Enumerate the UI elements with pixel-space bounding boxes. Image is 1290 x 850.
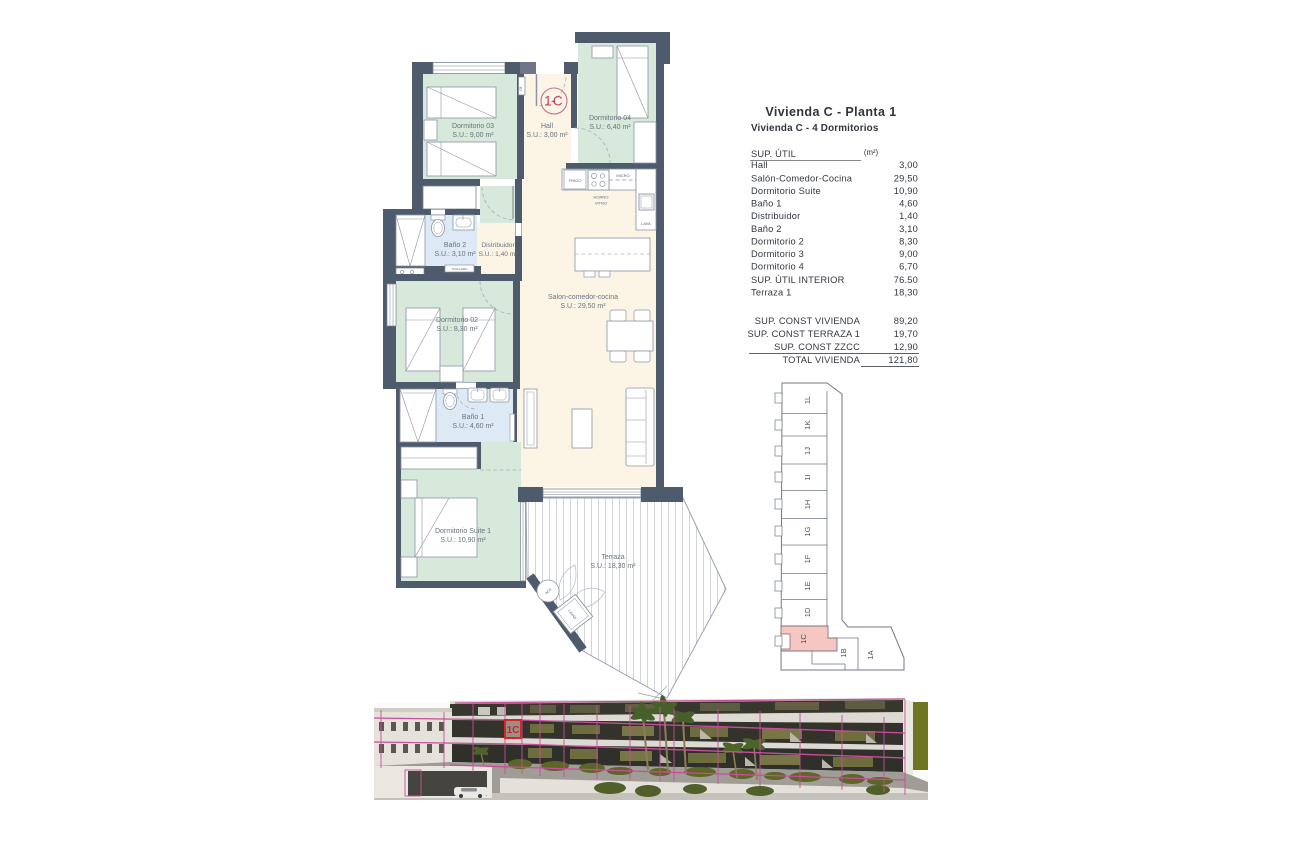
svg-text:1C: 1C xyxy=(507,725,520,736)
svg-text:10,90: 10,90 xyxy=(894,186,918,196)
svg-text:76.50: 76.50 xyxy=(894,275,918,285)
svg-text:VITRO: VITRO xyxy=(595,201,607,206)
svg-text:SUP. CONST TERRAZA 1: SUP. CONST TERRAZA 1 xyxy=(748,329,861,339)
svg-text:S.U.: 6,40 m²: S.U.: 6,40 m² xyxy=(589,124,631,131)
svg-text:1A: 1A xyxy=(866,650,875,659)
svg-text:18,30: 18,30 xyxy=(894,288,918,298)
svg-text:19,70: 19,70 xyxy=(894,329,918,339)
svg-text:3,00: 3,00 xyxy=(899,160,918,170)
svg-text:S.U.: 3,10 m²: S.U.: 3,10 m² xyxy=(434,251,476,258)
svg-text:Hall: Hall xyxy=(751,160,768,170)
svg-text:1H: 1H xyxy=(803,500,812,510)
svg-text:S.U.: 8,30 m²: S.U.: 8,30 m² xyxy=(436,326,478,333)
svg-text:S.U.: 10,90 m²: S.U.: 10,90 m² xyxy=(440,537,486,544)
svg-text:1G: 1G xyxy=(803,526,812,536)
svg-text:Baño 1: Baño 1 xyxy=(462,414,484,421)
svg-text:Dormitorio 02: Dormitorio 02 xyxy=(436,317,478,324)
svg-text:S.U.: 4,60 m²: S.U.: 4,60 m² xyxy=(452,423,494,430)
svg-text:FRIGO: FRIGO xyxy=(569,178,582,183)
svg-text:Dormitorio 3: Dormitorio 3 xyxy=(751,249,804,259)
svg-text:89,20: 89,20 xyxy=(894,316,918,326)
svg-text:SUP. CONST VIVIENDA: SUP. CONST VIVIENDA xyxy=(755,316,861,326)
svg-text:1I: 1I xyxy=(803,474,812,480)
svg-text:Distribuidor: Distribuidor xyxy=(481,242,515,249)
svg-text:6,70: 6,70 xyxy=(899,262,918,272)
svg-text:Salon-comedor-cocina: Salon-comedor-cocina xyxy=(548,294,618,301)
svg-text:Dormitorio 4: Dormitorio 4 xyxy=(751,262,804,272)
svg-text:Dormitorio Suite: Dormitorio Suite xyxy=(751,186,821,196)
svg-text:Dormitorio 03: Dormitorio 03 xyxy=(452,123,494,130)
svg-text:1J: 1J xyxy=(803,447,812,455)
svg-text:SUP. ÚTIL INTERIOR: SUP. ÚTIL INTERIOR xyxy=(751,275,845,285)
svg-text:(m²): (m²) xyxy=(864,148,879,157)
svg-text:TOALLERO: TOALLERO xyxy=(452,267,469,271)
svg-text:1D: 1D xyxy=(803,607,812,617)
svg-text:Distribuidor: Distribuidor xyxy=(751,211,800,221)
svg-text:121,80: 121,80 xyxy=(888,355,918,365)
svg-text:1L: 1L xyxy=(803,396,812,404)
svg-text:1E: 1E xyxy=(803,581,812,590)
svg-text:1K: 1K xyxy=(803,420,812,429)
svg-text:TOTAL VIVIENDA: TOTAL VIVIENDA xyxy=(782,355,860,365)
svg-text:Terraza: Terraza xyxy=(601,554,624,561)
svg-text:Baño 2: Baño 2 xyxy=(444,242,466,249)
svg-text:Hall: Hall xyxy=(541,123,554,130)
svg-text:S.U.: 1,40 m²: S.U.: 1,40 m² xyxy=(479,251,519,258)
svg-text:Dormitorio 2: Dormitorio 2 xyxy=(751,237,804,247)
svg-text:12,90: 12,90 xyxy=(894,342,918,352)
svg-text:Vivienda C - 4 Dormitorios: Vivienda C - 4 Dormitorios xyxy=(751,123,879,134)
svg-text:SUP. ÚTIL: SUP. ÚTIL xyxy=(751,149,796,159)
svg-text:1C: 1C xyxy=(544,94,564,109)
svg-text:S.U.: 18,30 m²: S.U.: 18,30 m² xyxy=(590,563,636,570)
svg-text:S.U.: 29,50 m²: S.U.: 29,50 m² xyxy=(560,303,606,310)
svg-text:1B: 1B xyxy=(839,648,848,657)
svg-text:HORNO: HORNO xyxy=(594,195,609,200)
svg-text:29,50: 29,50 xyxy=(894,173,918,183)
svg-text:1F: 1F xyxy=(803,554,812,563)
svg-text:1,40: 1,40 xyxy=(899,211,918,221)
svg-text:4,60: 4,60 xyxy=(899,199,918,209)
svg-text:S.U.: 9,00 m²: S.U.: 9,00 m² xyxy=(452,132,494,139)
svg-text:8,30: 8,30 xyxy=(899,237,918,247)
svg-text:Terraza 1: Terraza 1 xyxy=(751,288,792,298)
svg-text:Dormitorio Suite 1: Dormitorio Suite 1 xyxy=(435,528,491,535)
svg-text:9,00: 9,00 xyxy=(899,249,918,259)
svg-text:S.U.: 3,00 m²: S.U.: 3,00 m² xyxy=(526,132,568,139)
svg-text:SUP. CONST ZZCC: SUP. CONST ZZCC xyxy=(774,342,860,352)
svg-text:Baño 1: Baño 1 xyxy=(751,199,782,209)
svg-text:Dormitorio 04: Dormitorio 04 xyxy=(589,115,631,122)
svg-text:Baño 2: Baño 2 xyxy=(751,224,782,234)
svg-text:CB: CB xyxy=(519,87,523,91)
svg-text:LAVA: LAVA xyxy=(641,221,651,226)
svg-text:1C: 1C xyxy=(799,634,808,644)
svg-text:3,10: 3,10 xyxy=(899,224,918,234)
svg-text:Vivienda C - Planta 1: Vivienda C - Planta 1 xyxy=(765,105,896,119)
svg-text:MICRO: MICRO xyxy=(616,173,629,178)
svg-text:Salón-Comedor-Cocina: Salón-Comedor-Cocina xyxy=(751,173,853,183)
